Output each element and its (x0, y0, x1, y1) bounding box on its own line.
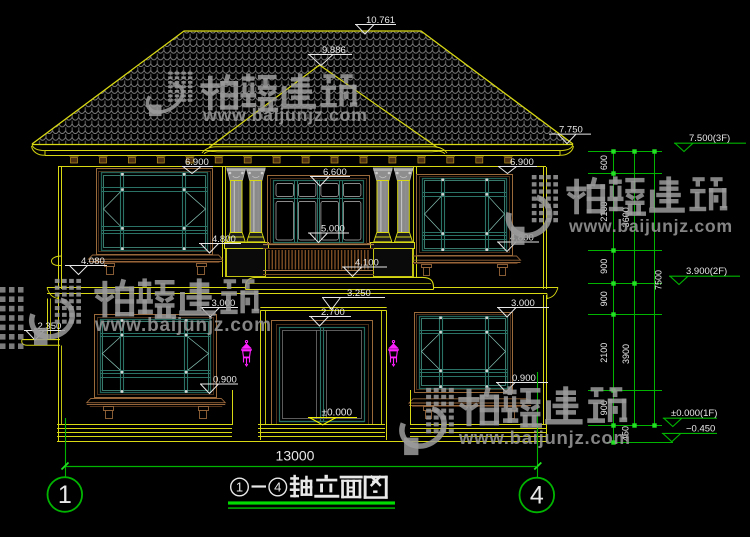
svg-text:0.900: 0.900 (213, 375, 237, 386)
svg-text:900: 900 (599, 291, 609, 306)
svg-text:3.000: 3.000 (212, 298, 236, 309)
svg-text:4.080: 4.080 (81, 256, 105, 267)
svg-text:600: 600 (599, 155, 609, 170)
svg-text:7.500(3F): 7.500(3F) (689, 133, 730, 144)
svg-text:10.761: 10.761 (366, 15, 395, 26)
svg-text:www.baijunjz.com: www.baijunjz.com (202, 105, 368, 125)
svg-text:13000: 13000 (276, 448, 315, 464)
svg-text:1: 1 (58, 481, 72, 509)
svg-text:1: 1 (236, 480, 243, 495)
svg-text:±0.000(1F): ±0.000(1F) (671, 408, 717, 419)
svg-text:2.700: 2.700 (321, 307, 345, 318)
svg-text:6.600: 6.600 (323, 167, 347, 178)
svg-text:9.886: 9.886 (322, 45, 346, 56)
svg-text:0.900: 0.900 (512, 373, 536, 384)
svg-text:7.750: 7.750 (559, 125, 583, 136)
svg-text:www.baijunjz.com: www.baijunjz.com (94, 315, 272, 336)
svg-text:4.100: 4.100 (355, 258, 379, 269)
svg-text:±0.000: ±0.000 (322, 408, 353, 419)
svg-text:6.900: 6.900 (510, 157, 534, 168)
svg-text:4.800: 4.800 (212, 234, 236, 245)
svg-text:3.000: 3.000 (511, 298, 535, 309)
svg-text:2100: 2100 (599, 343, 609, 363)
svg-text:7500: 7500 (654, 270, 664, 290)
svg-text:−0.450: −0.450 (686, 423, 715, 434)
svg-text:6.900: 6.900 (185, 157, 209, 168)
svg-text:3900: 3900 (621, 344, 631, 364)
svg-text:4: 4 (274, 480, 281, 495)
svg-text:3.900(2F): 3.900(2F) (686, 266, 727, 277)
svg-text:3.250: 3.250 (347, 288, 371, 299)
svg-text:900: 900 (599, 259, 609, 274)
svg-text:www.baijunjz.com: www.baijunjz.com (458, 427, 631, 448)
svg-text:5.000: 5.000 (321, 224, 345, 235)
svg-text:4: 4 (530, 482, 544, 510)
svg-text:www.baijunjz.com: www.baijunjz.com (568, 216, 733, 236)
